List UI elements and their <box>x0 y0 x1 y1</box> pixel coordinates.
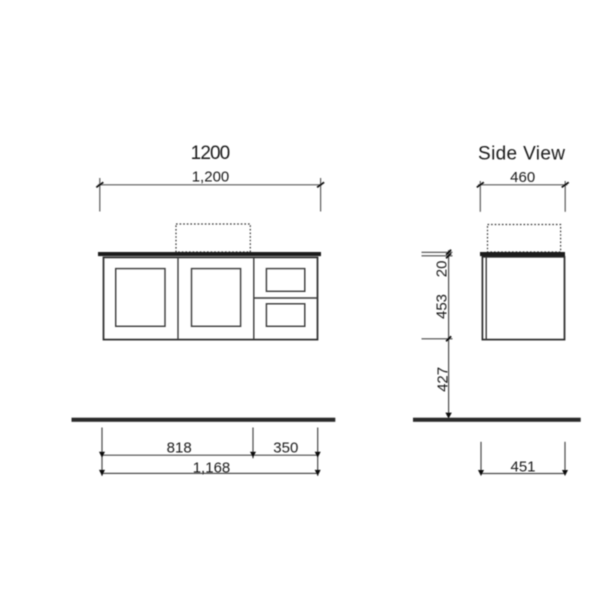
svg-text:427: 427 <box>435 367 452 392</box>
svg-text:453: 453 <box>433 294 450 319</box>
svg-text:451: 451 <box>510 459 535 476</box>
svg-text:1200: 1200 <box>191 143 230 164</box>
svg-text:20: 20 <box>433 261 450 278</box>
svg-text:Side View: Side View <box>478 144 565 165</box>
svg-text:460: 460 <box>510 169 535 186</box>
svg-text:818: 818 <box>167 440 192 457</box>
svg-text:1,168: 1,168 <box>193 459 231 476</box>
svg-text:1,200: 1,200 <box>192 169 230 186</box>
svg-text:350: 350 <box>273 439 298 456</box>
